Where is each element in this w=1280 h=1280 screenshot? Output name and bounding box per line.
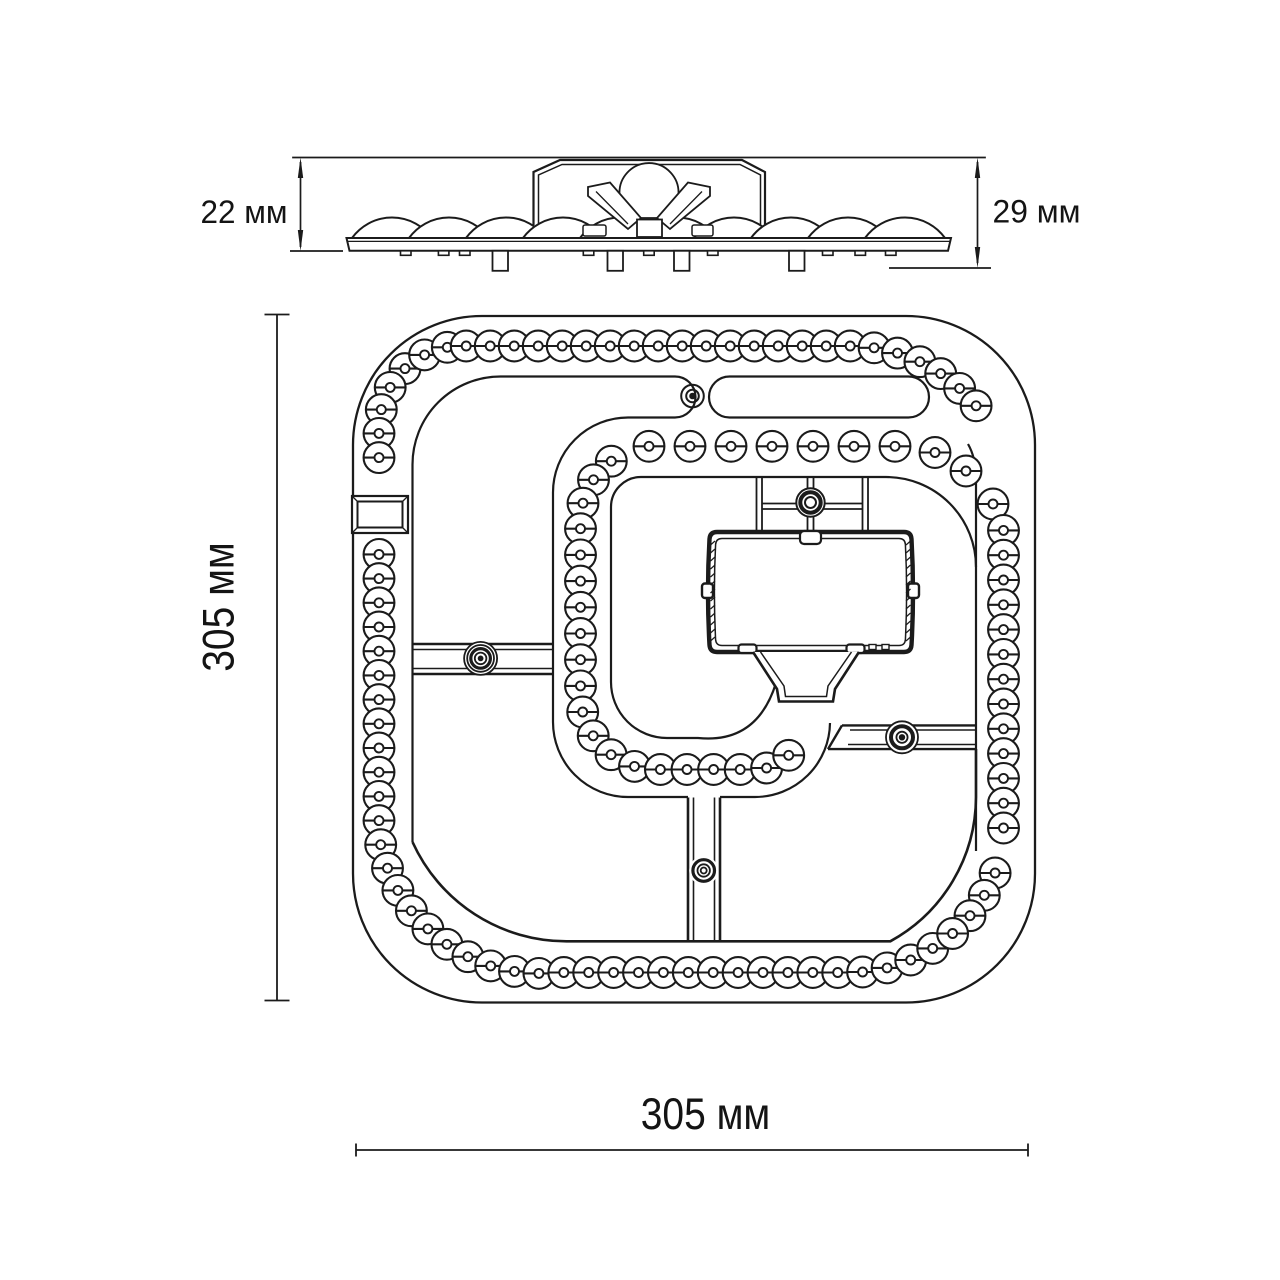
svg-text:29 мм: 29 мм <box>993 194 1081 230</box>
svg-text:22 мм: 22 мм <box>201 194 288 230</box>
svg-text:305 мм: 305 мм <box>195 542 244 672</box>
svg-text:305 мм: 305 мм <box>641 1090 771 1139</box>
